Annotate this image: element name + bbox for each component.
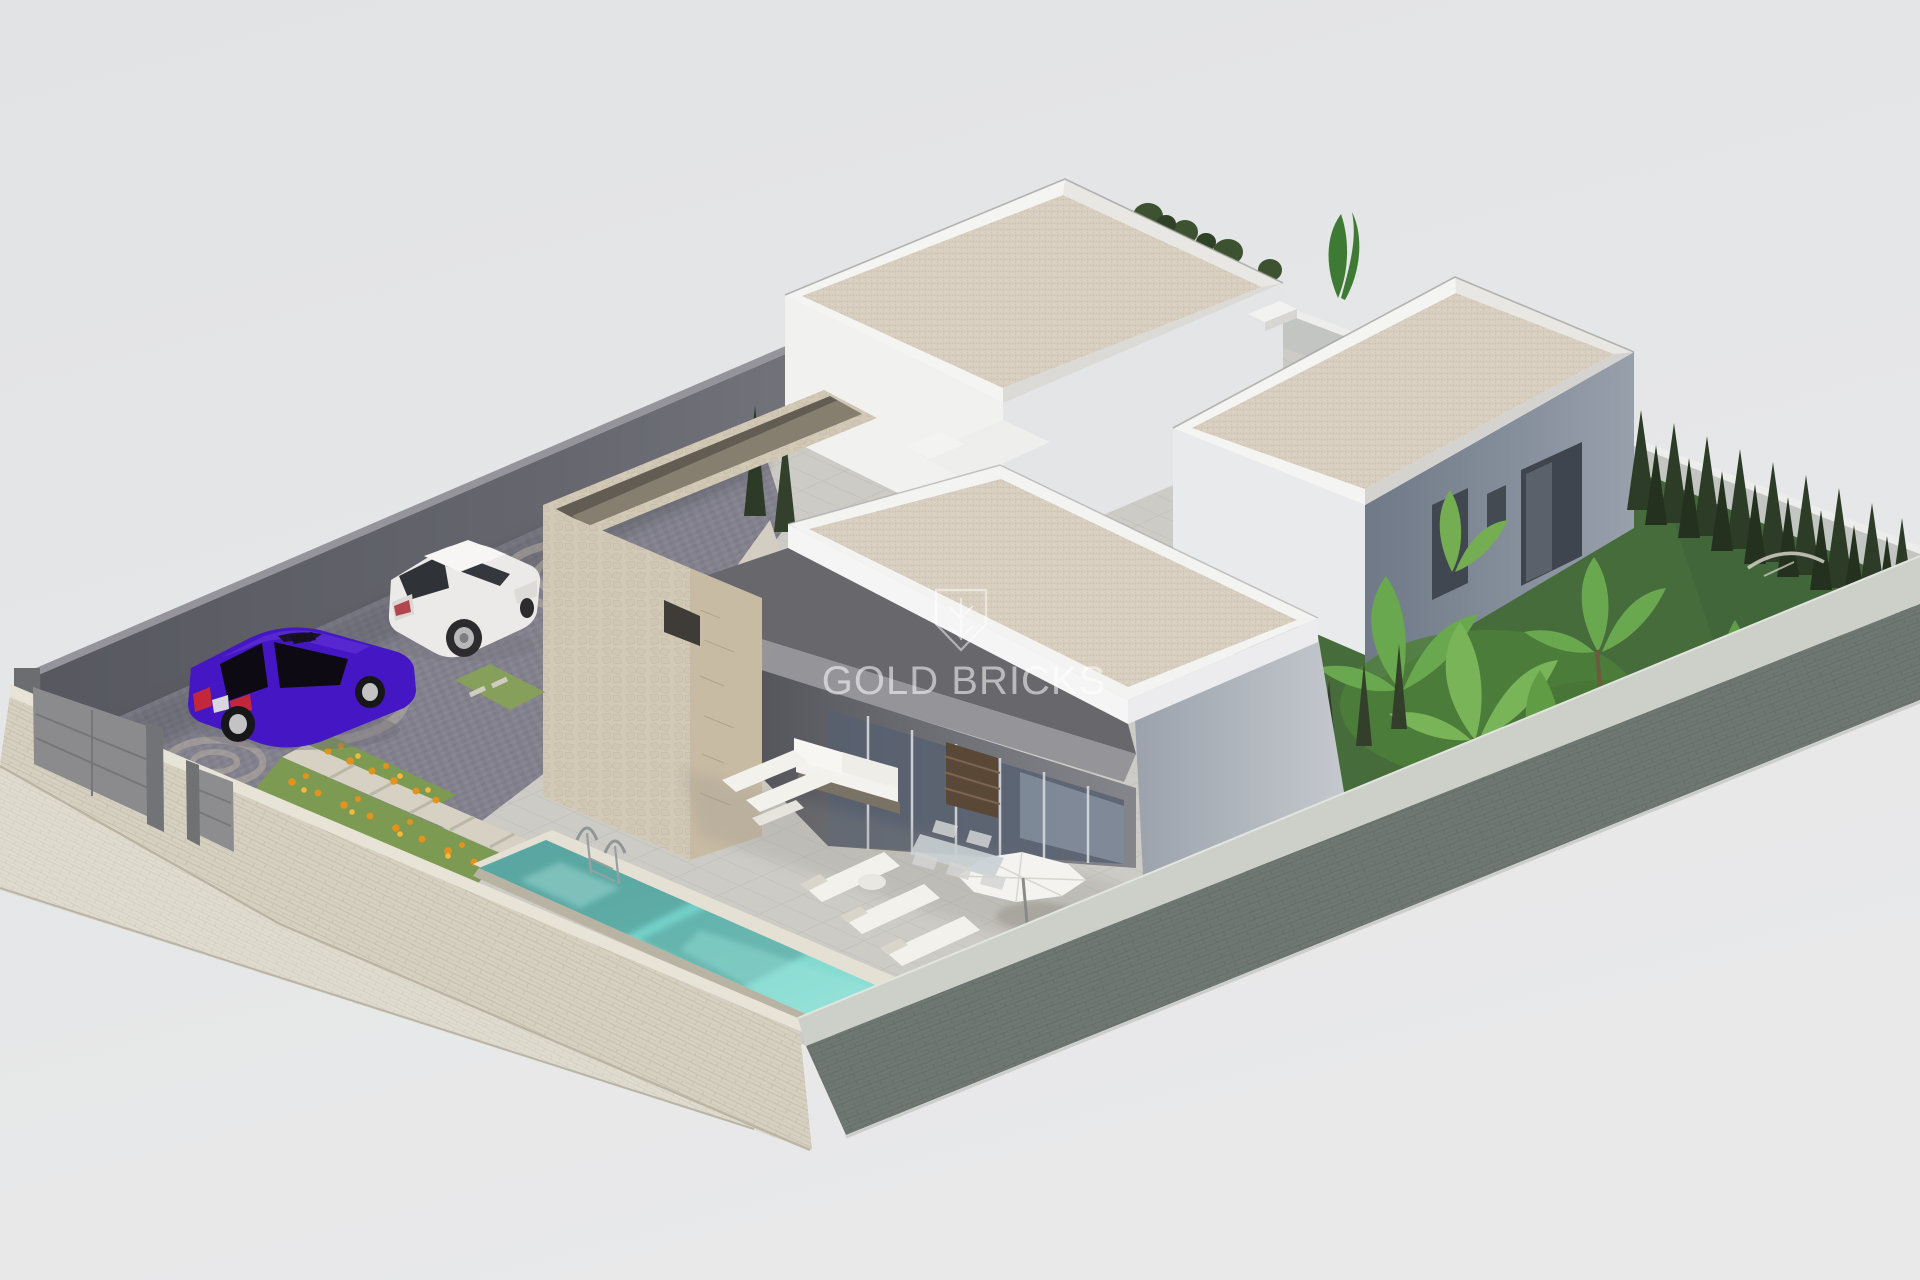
svg-text:GOLD BRICKS: GOLD BRICKS: [822, 659, 1106, 703]
